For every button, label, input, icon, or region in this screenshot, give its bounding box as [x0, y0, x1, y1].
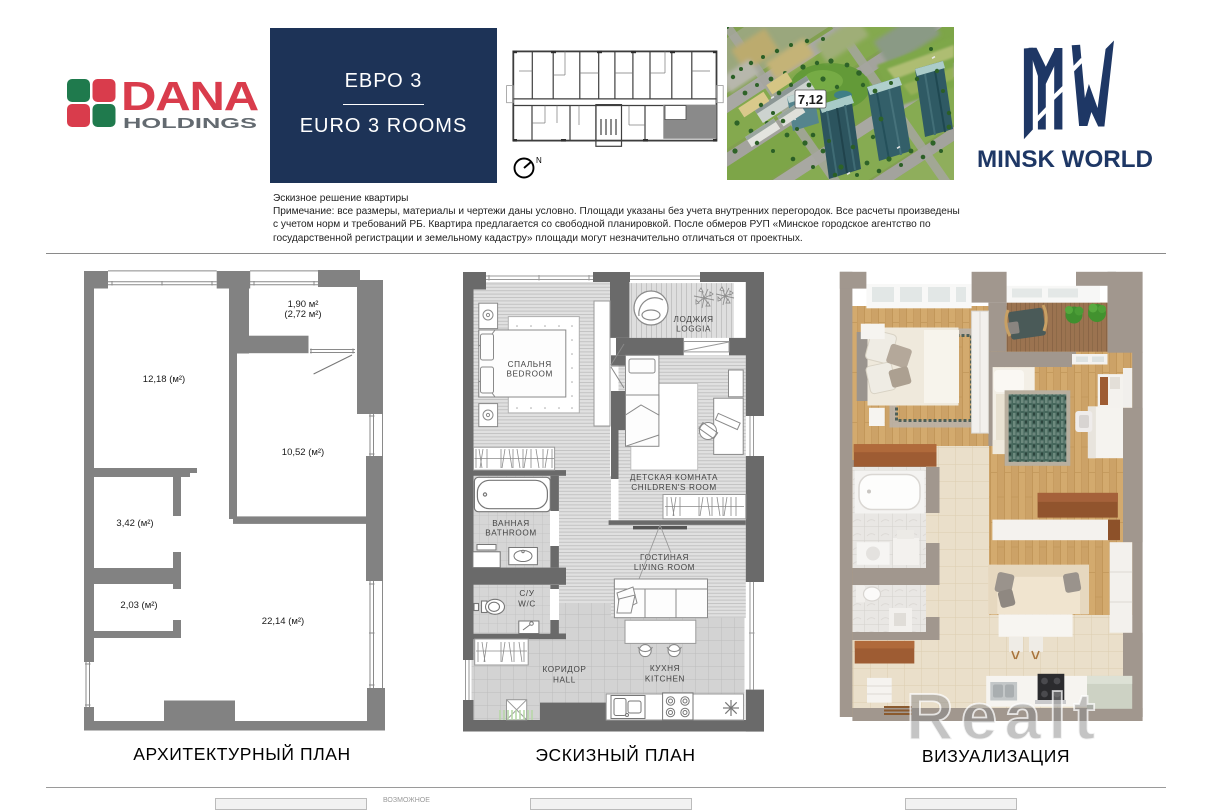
svg-text:12,18 (м²): 12,18 (м²) [143, 374, 185, 385]
svg-text:BATHROOM: BATHROOM [485, 529, 537, 538]
svg-text:КУХНЯ: КУХНЯ [650, 664, 680, 673]
svg-text:HALL: HALL [553, 676, 576, 685]
svg-text:СПАЛЬНЯ: СПАЛЬНЯ [508, 360, 552, 369]
svg-text:Realt: Realt [906, 679, 1102, 740]
svg-text:BEDROOM: BEDROOM [506, 370, 553, 379]
svg-text:ДЕТСКАЯ КОМНАТА: ДЕТСКАЯ КОМНАТА [630, 473, 718, 482]
svg-text:(2,72 м²): (2,72 м²) [284, 309, 321, 320]
svg-text:2,03 (м²): 2,03 (м²) [120, 600, 157, 611]
svg-text:3,42 (м²): 3,42 (м²) [116, 518, 153, 529]
svg-text:N: N [536, 156, 542, 165]
svg-text:MINSK WORLD: MINSK WORLD [977, 146, 1153, 170]
svg-text:10,52 (м²): 10,52 (м²) [282, 447, 324, 458]
svg-text:С/У: С/У [519, 589, 534, 598]
svg-text:7,12: 7,12 [798, 92, 823, 107]
svg-text:ЛОДЖИЯ: ЛОДЖИЯ [674, 315, 714, 324]
svg-text:22,14 (м²): 22,14 (м²) [262, 616, 304, 627]
svg-text:CHILDREN'S ROOM: CHILDREN'S ROOM [631, 483, 717, 492]
svg-text:ВАННАЯ: ВАННАЯ [492, 519, 529, 528]
svg-text:HOLDINGS: HOLDINGS [123, 115, 257, 132]
svg-text:KITCHEN: KITCHEN [645, 675, 685, 684]
svg-text:LOGGIA: LOGGIA [676, 325, 711, 334]
svg-text:W/C: W/C [518, 600, 536, 609]
svg-text:DANA: DANA [121, 77, 258, 119]
svg-text:КОРИДОР: КОРИДОР [543, 665, 587, 674]
